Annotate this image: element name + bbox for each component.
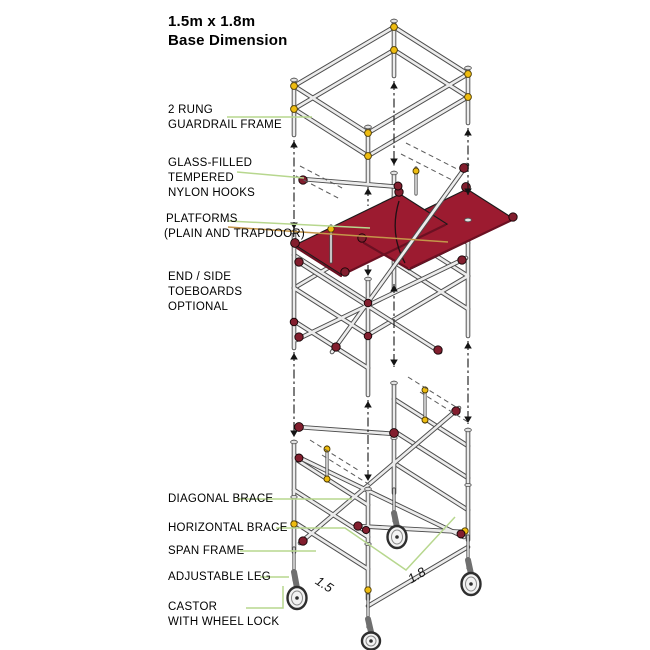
label-line: DIAGONAL BRACE — [168, 492, 273, 507]
title-line-1: 1.5m x 1.8m — [168, 12, 288, 31]
label-line: NYLON HOOKS — [168, 186, 255, 201]
label-line: END / SIDE — [168, 270, 242, 285]
tubes-front-fill — [294, 21, 468, 606]
dimension-1-5: 1.5 — [313, 573, 337, 596]
label-guardrail-frame: 2 RUNG GUARDRAIL FRAME — [168, 103, 282, 133]
label-line: OPTIONAL — [168, 300, 242, 315]
page-title: 1.5m x 1.8m Base Dimension — [168, 12, 288, 50]
castor-wheel — [388, 513, 407, 548]
title-line-2: Base Dimension — [168, 31, 288, 50]
label-line: HORIZONTAL BRACE — [168, 521, 288, 536]
label-nylon-hooks: GLASS-FILLED TEMPERED NYLON HOOKS — [168, 156, 255, 201]
label-line: GLASS-FILLED — [168, 156, 255, 171]
label-platforms: PLATFORMS (PLAIN AND TRAPDOOR) — [166, 212, 305, 242]
label-line: 2 RUNG — [168, 103, 282, 118]
label-line: SPAN FRAME — [168, 544, 244, 559]
platforms-drawing — [295, 189, 514, 276]
label-line: CASTOR — [168, 600, 279, 615]
castor-wheel — [362, 619, 380, 650]
label-line: (PLAIN AND TRAPDOOR) — [164, 227, 305, 242]
label-line: GUARDRAIL FRAME — [168, 118, 282, 133]
label-line: WITH WHEEL LOCK — [168, 615, 279, 630]
label-line: PLATFORMS — [166, 212, 305, 227]
label-line: TOEBOARDS — [168, 285, 242, 300]
castor-wheel — [288, 572, 307, 609]
label-diagonal-brace: DIAGONAL BRACE — [168, 492, 273, 507]
scaffold-tower-diagram: 1.5 1.8 — [0, 0, 650, 650]
label-line: ADJUSTABLE LEG — [168, 570, 271, 585]
label-toeboards: END / SIDE TOEBOARDS OPTIONAL — [168, 270, 242, 315]
label-adjustable-leg: ADJUSTABLE LEG — [168, 570, 271, 585]
label-castor: CASTOR WITH WHEEL LOCK — [168, 600, 279, 630]
label-span-frame: SPAN FRAME — [168, 544, 244, 559]
label-line: TEMPERED — [168, 171, 255, 186]
castor-wheel — [462, 560, 481, 595]
label-horizontal-brace: HORIZONTAL BRACE — [168, 521, 288, 536]
